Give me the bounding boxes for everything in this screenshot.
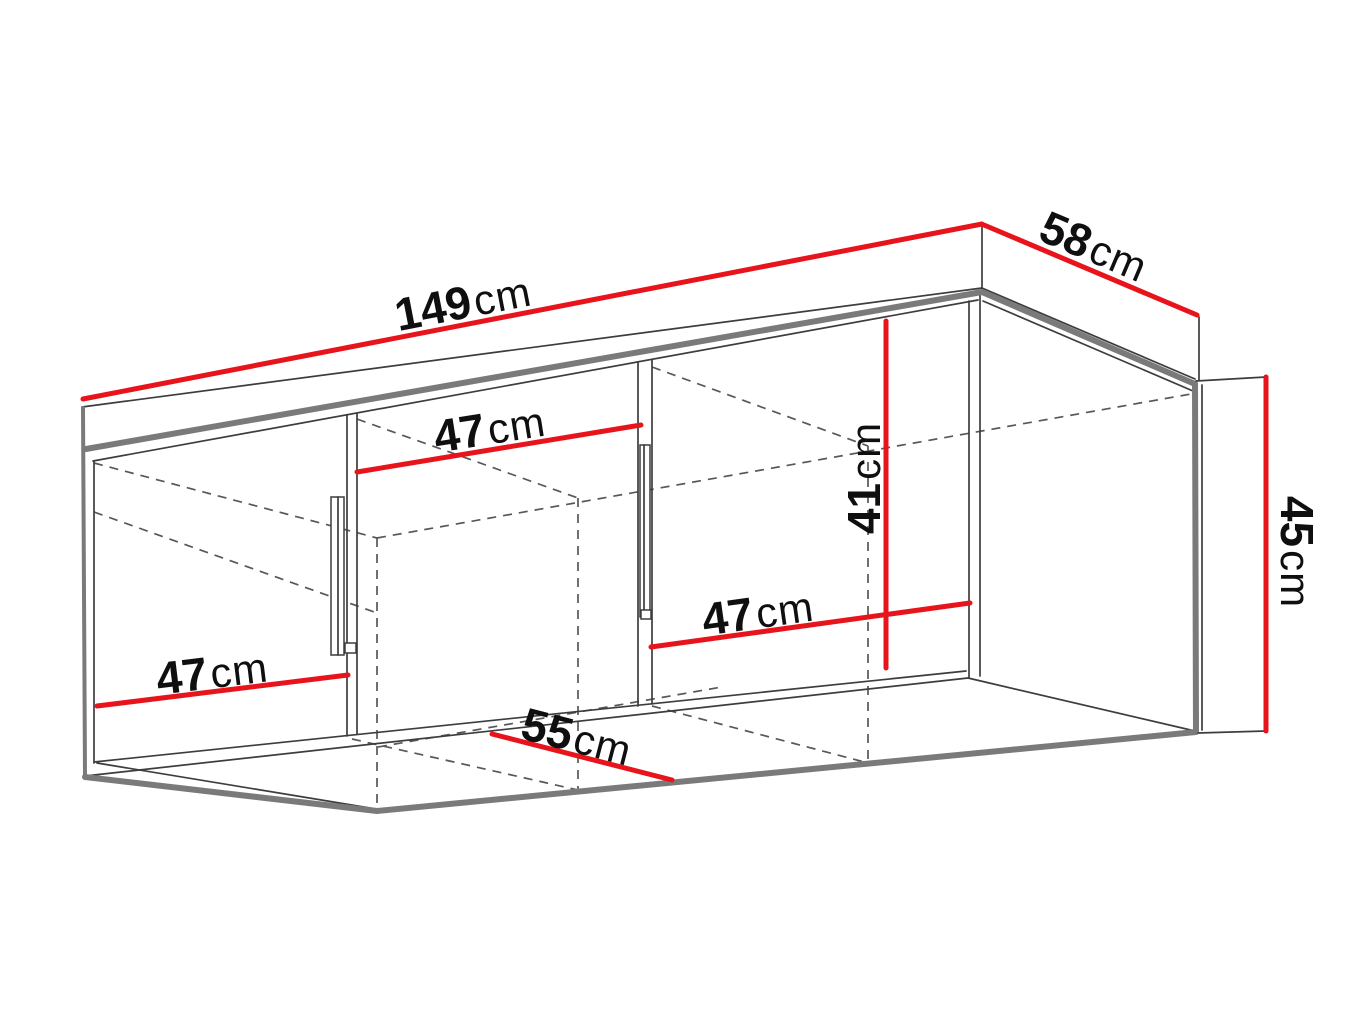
- dimension-lines: [83, 224, 1266, 780]
- dim-label-height-right: 45cm: [1271, 496, 1323, 608]
- dim-label-inner-width-left: 47cm: [153, 639, 271, 704]
- extension-lines: [982, 226, 1266, 733]
- dim-label-inner-height: 41cm: [838, 422, 890, 534]
- door-handles: [331, 445, 651, 655]
- divider2-top-depth-edge: [652, 367, 868, 446]
- handle-left-foot: [345, 643, 356, 653]
- cabinet-drawing: 149cm 58cm 45cm 41cm 47cm 47cm 47cm 55cm: [0, 0, 1370, 1027]
- dimension-labels: 149cm 58cm 45cm 41cm 47cm 47cm 47cm 55cm: [153, 200, 1323, 775]
- divider2-bottom-depth-edge: [652, 706, 868, 763]
- dim-label-depth-top: 58cm: [1032, 200, 1156, 292]
- handle-right-foot: [641, 610, 651, 619]
- left-front-vertical-outline: [83, 408, 85, 777]
- dimension-diagram: 149cm 58cm 45cm 41cm 47cm 47cm 47cm 55cm: [0, 0, 1370, 1027]
- dim-label-width-top: 149cm: [390, 264, 535, 341]
- right-bottom-edge: [968, 678, 1195, 731]
- height-top-extension-line: [1196, 377, 1266, 381]
- handle-right-bar: [640, 445, 650, 617]
- right-top-inner-edge: [983, 301, 1193, 391]
- dim-label-inner-width-right: 47cm: [699, 579, 817, 646]
- height-bottom-extension-line: [1198, 731, 1266, 733]
- dim-label-depth-bottom: 55cm: [516, 697, 638, 775]
- right-back-vertical-outline: [1195, 384, 1196, 732]
- top-right-outline: [982, 292, 1195, 384]
